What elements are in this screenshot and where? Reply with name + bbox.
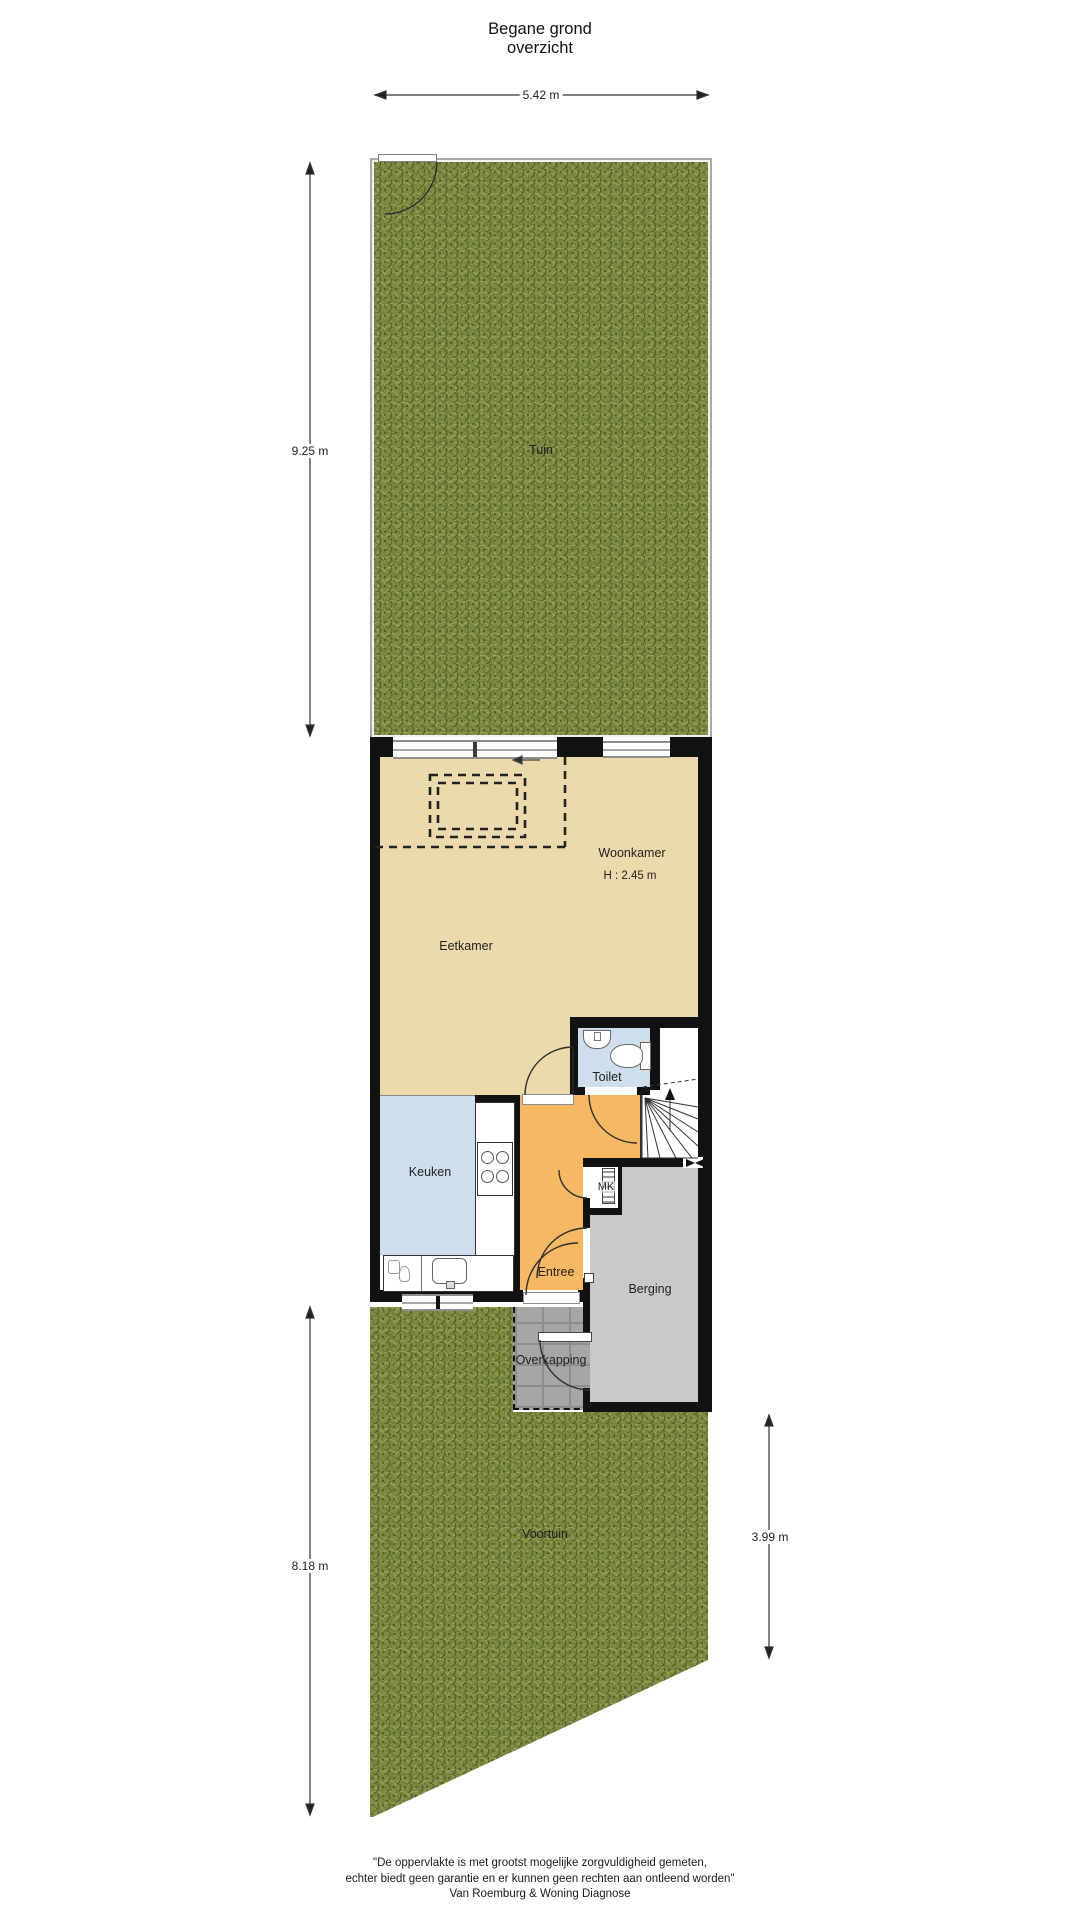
window-rear-sliding bbox=[393, 740, 557, 759]
dim-label-garden-depth: 9.25 m bbox=[289, 444, 332, 458]
boiler-icon bbox=[399, 1266, 410, 1282]
berging-door-panel bbox=[538, 1332, 592, 1342]
window-kitchen-front bbox=[402, 1294, 473, 1311]
page-title: Begane grond overzicht bbox=[0, 20, 1080, 58]
wall-toilet-stairs bbox=[650, 1028, 660, 1090]
stairs-treads bbox=[645, 1098, 698, 1158]
room-label-toilet: Toilet bbox=[592, 1070, 621, 1084]
disclaimer-line1: "De oppervlakte is met grootst mogelijke… bbox=[0, 1856, 1080, 1872]
stairs-up-arrow-icon bbox=[665, 1088, 675, 1100]
sink-icon bbox=[432, 1258, 467, 1284]
tap-icon bbox=[594, 1032, 601, 1041]
floor-berging bbox=[590, 1215, 698, 1402]
wall-top-3 bbox=[670, 737, 712, 757]
room-label-keuken: Keuken bbox=[409, 1165, 451, 1179]
floor-berging-upper bbox=[622, 1167, 698, 1215]
burner-icon bbox=[496, 1151, 509, 1164]
wall-kitchen-stub bbox=[475, 1095, 513, 1102]
window-center-tick bbox=[473, 742, 477, 757]
cooktop-icon bbox=[477, 1142, 513, 1196]
toilet-bowl-icon bbox=[610, 1044, 643, 1068]
room-label-mk: MK bbox=[597, 1181, 616, 1193]
room-label-woonkamer-height: H : 2.45 m bbox=[603, 870, 656, 882]
disclaimer-line3: Van Roemburg & Woning Diagnose bbox=[0, 1887, 1080, 1903]
dim-label-front-garden-depth: 8.18 m bbox=[289, 1559, 332, 1573]
burner-icon bbox=[496, 1170, 509, 1183]
sink-drain-icon bbox=[446, 1281, 455, 1289]
title-line2: overzicht bbox=[0, 39, 1080, 58]
dim-label-garden-width: 5.42 m bbox=[520, 88, 563, 102]
wall-top-2 bbox=[557, 737, 603, 757]
front-door-threshold bbox=[523, 1292, 580, 1304]
wall-mk-bottom bbox=[583, 1208, 622, 1215]
room-label-voortuin: Voortuin bbox=[522, 1527, 568, 1541]
window-divider bbox=[436, 1296, 440, 1309]
stairs bbox=[642, 1079, 698, 1158]
dim-label-front-garden-right-depth: 3.99 m bbox=[749, 1530, 792, 1544]
window-glass-line bbox=[603, 749, 670, 751]
disclaimer-line2: echter biedt geen garantie en er kunnen … bbox=[0, 1872, 1080, 1888]
stairs-outline bbox=[642, 1095, 698, 1158]
vent-icon bbox=[683, 1157, 703, 1168]
wall-toilet-bottom-b bbox=[637, 1087, 650, 1095]
wall-top-1 bbox=[370, 737, 393, 757]
wall-berging-left-c bbox=[583, 1388, 590, 1402]
room-label-overkapping: Overkapping bbox=[516, 1353, 587, 1367]
burner-icon bbox=[481, 1151, 494, 1164]
wall-left bbox=[370, 757, 380, 1302]
door-hinge-post bbox=[584, 1273, 594, 1283]
room-label-tuin: Tuin bbox=[529, 443, 553, 457]
window-rear-small bbox=[603, 741, 670, 758]
floor-eetkamer-lower bbox=[380, 1017, 570, 1095]
wall-toilet-left bbox=[570, 1028, 578, 1095]
disclaimer: "De oppervlakte is met grootst mogelijke… bbox=[0, 1856, 1080, 1903]
room-label-entree: Entree bbox=[538, 1265, 575, 1279]
floorplan-page: Begane grond overzicht bbox=[0, 0, 1080, 1920]
wall-toilet-top bbox=[570, 1017, 712, 1028]
eetkamer-door-threshold bbox=[522, 1094, 574, 1105]
wall-berging-bottom bbox=[583, 1402, 712, 1412]
burner-icon bbox=[481, 1170, 494, 1183]
floor-woonkamer-eetkamer bbox=[380, 757, 698, 1017]
garden-gate-panel bbox=[378, 154, 437, 162]
room-label-woonkamer: Woonkamer bbox=[598, 846, 665, 860]
title-line1: Begane grond bbox=[0, 20, 1080, 39]
wall-right bbox=[698, 757, 712, 1412]
room-label-eetkamer: Eetkamer bbox=[439, 939, 493, 953]
room-label-berging: Berging bbox=[628, 1282, 671, 1296]
counter-divider bbox=[421, 1256, 422, 1291]
divider-entree-stairs bbox=[640, 1095, 642, 1158]
